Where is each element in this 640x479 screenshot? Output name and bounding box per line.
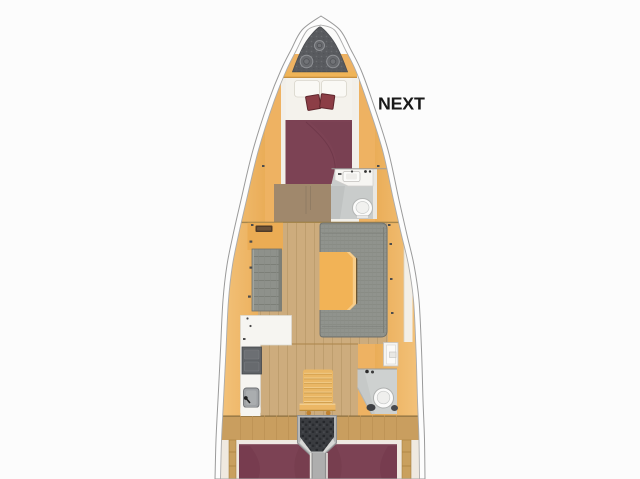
svg-text:NEXT: NEXT [378, 94, 425, 114]
